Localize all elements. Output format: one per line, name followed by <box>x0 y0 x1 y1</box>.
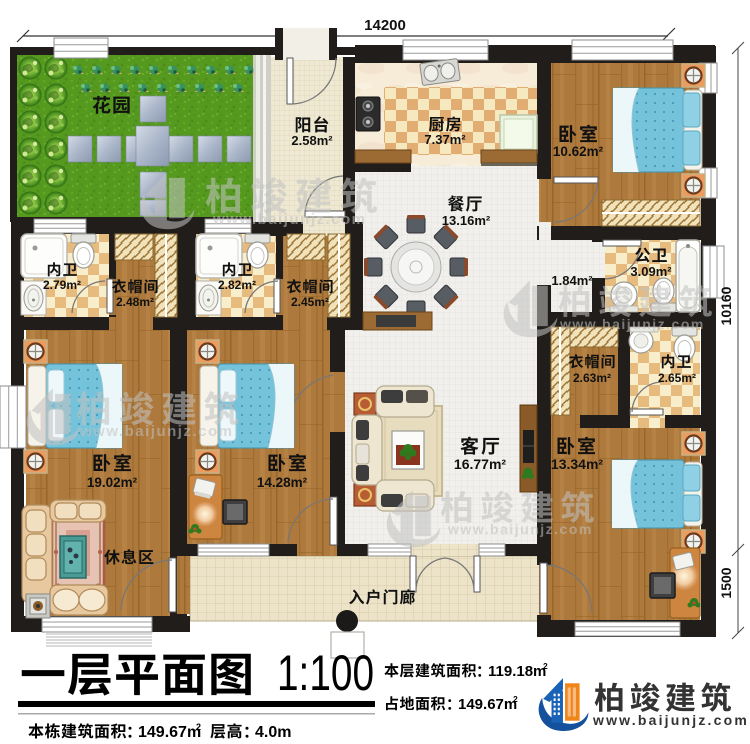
svg-text:www.baijunjz.com: www.baijunjz.com <box>592 712 749 728</box>
svg-text:1:100: 1:100 <box>277 645 374 701</box>
svg-text:1500: 1500 <box>718 567 734 598</box>
svg-text:16.77m²: 16.77m² <box>454 456 506 472</box>
svg-text:1.84m²: 1.84m² <box>551 273 593 288</box>
svg-text:14200: 14200 <box>364 17 406 34</box>
svg-text:2.65m²: 2.65m² <box>658 371 696 385</box>
svg-text:4.0m: 4.0m <box>255 724 291 741</box>
svg-text:14.28m²: 14.28m² <box>257 475 308 490</box>
svg-text:149.67m: 149.67m <box>458 696 517 713</box>
svg-text:10.62m²: 10.62m² <box>553 144 604 159</box>
svg-text:2: 2 <box>196 722 201 732</box>
svg-text:2.63m²: 2.63m² <box>573 371 611 385</box>
svg-text:7.37m²: 7.37m² <box>424 132 466 147</box>
svg-text:2.79m²: 2.79m² <box>43 278 81 292</box>
svg-text:www.baijunjz.com: www.baijunjz.com <box>79 423 233 440</box>
svg-text:2.82m²: 2.82m² <box>218 278 256 292</box>
svg-text:www.baijunjz.com: www.baijunjz.com <box>559 316 705 332</box>
svg-text:119.18m: 119.18m <box>488 663 546 680</box>
svg-text:2.45m²: 2.45m² <box>291 295 329 309</box>
svg-text:2: 2 <box>513 694 518 704</box>
svg-text:www.baijunjz.com: www.baijunjz.com <box>212 211 366 228</box>
svg-text:149.67m: 149.67m <box>138 724 201 741</box>
svg-text:2: 2 <box>543 661 548 671</box>
svg-text:2.48m²: 2.48m² <box>116 295 154 309</box>
svg-text:13.16m²: 13.16m² <box>442 213 491 228</box>
svg-text:10160: 10160 <box>718 286 734 325</box>
svg-text:19.02m²: 19.02m² <box>87 475 138 490</box>
svg-text:13.34m²: 13.34m² <box>551 456 603 472</box>
svg-text:3.09m²: 3.09m² <box>630 264 672 279</box>
svg-text:2.58m²: 2.58m² <box>291 133 333 148</box>
svg-text:www.baijunjz.com: www.baijunjz.com <box>447 521 593 537</box>
